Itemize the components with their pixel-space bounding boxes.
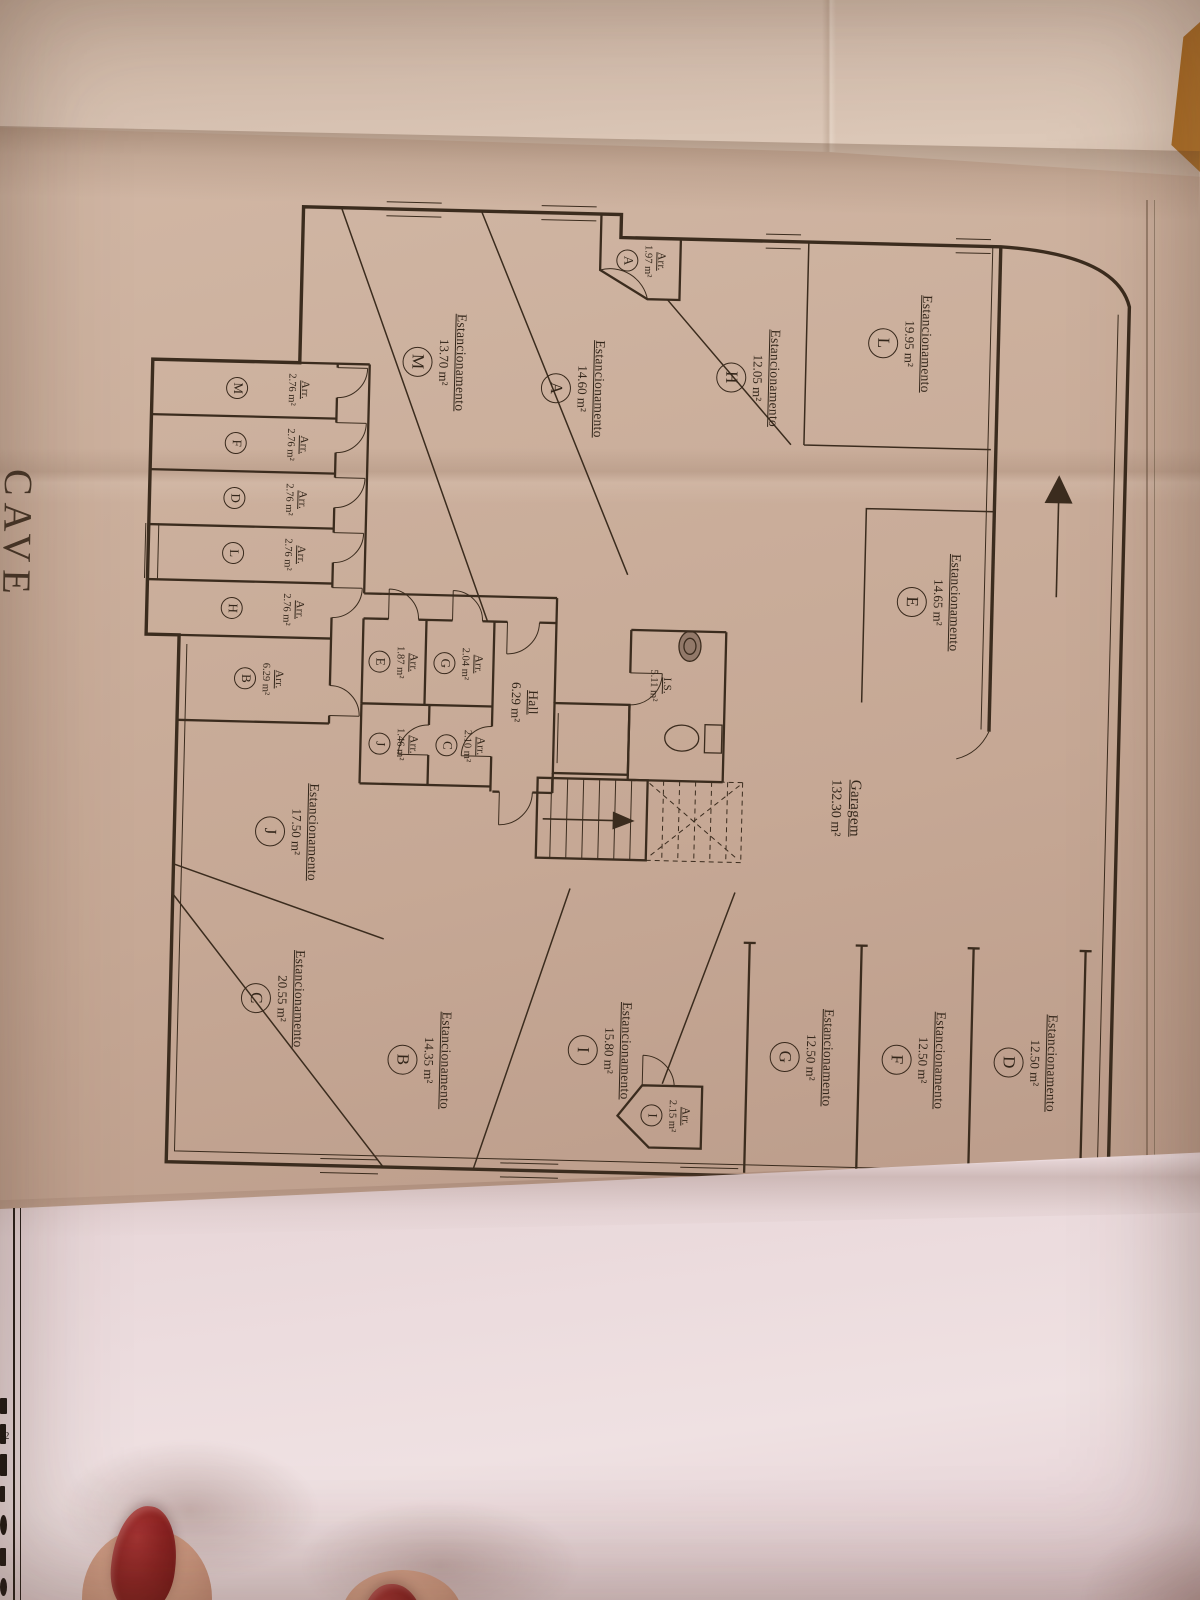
storage-label-M: Arr. 2.76 m² M [226,372,313,406]
room-type-label: Estancionamento [436,1012,456,1110]
room-type-label: Arr. [406,735,421,754]
parking-label-M: Estancionamento 13.70 m² M [401,312,471,411]
storage-label-H: Arr. 2.76 m² H [220,592,307,626]
room-letter-badge: H [715,362,746,393]
room-letter-badge: L [222,542,245,565]
parking-label-B: Estancionamento 14.35 m² B [386,1010,456,1109]
storage-label-I: Arr. 2.15 m² I [640,1099,693,1133]
room-type-label: Arr. [473,737,488,756]
room-area: 13.70 m² [435,339,453,386]
room-letter-badge: J [254,816,285,847]
room-area: 6.29 m² [507,682,525,722]
parking-label-D: Estancionamento 12.50 m² D [992,1013,1062,1112]
page-number-fragment: -2 [1,1431,9,1442]
room-type-label: Arr. [292,600,307,619]
photo-of-floor-plan: Estancionamento 19.95 m² L Estancionamen… [0,0,1200,1600]
room-area: 14.60 m² [573,365,591,412]
room-type-label: Estancionamento [303,783,323,881]
room-type-label: Estancionamento [930,1012,950,1110]
room-letter-badge: M [402,346,433,377]
room-area: 5.11 m² [646,669,660,701]
room-area: 19.95 m² [900,320,918,367]
room-area: 6.29 m² [258,663,272,696]
room-letter-badge: D [993,1047,1024,1078]
room-letter-badge: C [240,982,271,1013]
storage-label-J: Arr. 1.46 m² J [368,727,421,761]
room-type-label: Estancionamento [945,554,965,652]
sheet-frame-line [1154,200,1155,1160]
storage-label-G: Arr. 2.04 m² G [433,647,486,681]
room-type-label: Arr. [471,655,486,674]
room-type-label: Arr. [654,252,669,271]
room-letter-badge: G [769,1041,800,1072]
cutoff-text-fragment [0,1515,7,1535]
room-area: 132.30 m² [826,779,846,837]
sheet-frame-line [1146,200,1148,1160]
room-type-label: Arr. [406,653,421,672]
floor-plan: Estancionamento 19.95 m² L Estancionamen… [128,173,1142,1197]
room-type-label: I.S. [659,677,674,694]
storage-label-L: Arr. 2.76 m² L [222,537,309,571]
parking-label-F: Estancionamento 12.50 m² F [880,1010,950,1109]
room-area: 2.76 m² [278,593,292,626]
room-area: 2.10 m² [459,730,473,763]
cutoff-text-fragment [0,1454,7,1476]
room-area: 2.04 m² [457,647,471,680]
room-area: 1.97 m² [640,245,654,278]
room-area: 14.35 m² [419,1037,437,1084]
room-area: 15.80 m² [600,1027,618,1074]
storage-label-C: Arr. 2.10 m² C [435,729,488,763]
room-area: 2.76 m² [282,428,296,461]
room-type-label: Estancionamento [616,1002,636,1100]
room-type-label: Estancionamento [451,314,471,412]
title-block-border-line [13,1208,15,1600]
room-letter-badge: F [225,432,248,455]
room-type-label: Arr. [271,670,286,689]
room-letter-badge: I [640,1104,663,1127]
room-letter-badge: E [896,586,927,617]
room-letter-badge: A [616,249,639,272]
room-letter-badge: C [435,734,458,757]
room-type-label: Estancionamento [916,295,936,393]
wc-label: I.S. 5.11 m² [646,669,675,702]
room-letter-badge: B [387,1044,418,1075]
room-area: 17.50 m² [287,808,305,855]
room-letter-badge: L [867,328,898,359]
ramp-direction-arrow [1045,475,1074,504]
room-area: 2.76 m² [284,373,298,406]
parking-label-I: Estancionamento 15.80 m² I [566,1001,636,1100]
cutoff-text-fragment [0,1486,5,1502]
room-type-label: Garagem [844,780,865,838]
room-letter-badge: M [226,377,249,400]
room-area: 12.50 m² [914,1037,932,1084]
stairs-up-arrow [612,811,634,830]
room-area: 2.76 m² [280,538,294,571]
room-area: 2.76 m² [281,483,295,516]
parking-label-E: Estancionamento 14.65 m² E [895,553,965,652]
room-type-label: Hall [524,690,542,715]
room-letter-badge: E [368,650,391,673]
room-type-label: Arr. [296,435,311,454]
garage-label: Garagem 132.30 m² [826,779,865,837]
room-letter-badge: I [567,1034,598,1065]
parking-label-L: Estancionamento 19.95 m² L [867,294,937,393]
room-area: 20.55 m² [273,975,291,1022]
room-letter-badge: F [881,1044,912,1075]
room-type-label: Estancionamento [765,329,785,427]
title-block-border-line [20,1208,21,1600]
cutoff-text-fragment [0,1578,7,1596]
room-area: 1.87 m² [392,646,406,679]
parking-label-A: Estancionamento 14.60 m² A [539,339,609,438]
room-type-label: Estancionamento [589,340,609,438]
room-area: 1.46 m² [392,728,406,761]
parking-label-H: Estancionamento 12.05 m² H [715,328,785,427]
room-type-label: Estancionamento [1042,1014,1062,1112]
cutoff-text-fragment [0,1548,6,1566]
room-type-label: Estancionamento [289,950,309,1048]
room-letter-badge: J [368,733,391,756]
room-area: 12.50 m² [802,1034,820,1081]
hall-label: Hall 6.29 m² [507,682,542,723]
paper-crease [822,0,836,152]
room-letter-badge: A [540,373,571,404]
room-letter-badge: B [234,667,257,690]
room-type-label: Arr. [295,490,310,509]
room-type-label: Arr. [678,1107,693,1126]
storage-label-F: Arr. 2.76 m² F [224,427,311,461]
room-area: 12.50 m² [1026,1039,1044,1086]
room-letter-badge: G [433,652,456,675]
storage-label-A: Arr. 1.97 m² A [616,244,669,278]
parking-label-G: Estancionamento 12.50 m² G [768,1008,838,1107]
room-letter-badge: H [221,597,244,620]
room-area: 14.65 m² [929,579,947,626]
room-area: 12.05 m² [748,354,766,401]
sheet-title: CAVE [0,469,42,620]
cutoff-text-fragment [0,1398,7,1414]
parking-label-J: Estancionamento 17.50 m² J [253,782,323,881]
room-type-label: Arr. [298,380,313,399]
storage-label-E: Arr. 1.87 m² E [368,645,421,679]
room-type-label: Arr. [294,545,309,564]
room-letter-badge: D [223,487,246,510]
parking-label-C: Estancionamento 20.55 m² C [239,949,309,1048]
room-area: 2.15 m² [664,1100,678,1133]
storage-label-D: Arr. 2.76 m² D [223,482,310,516]
room-type-label: Estancionamento [818,1009,838,1107]
storage-label-B: Arr. 6.29 m² B [234,662,287,696]
